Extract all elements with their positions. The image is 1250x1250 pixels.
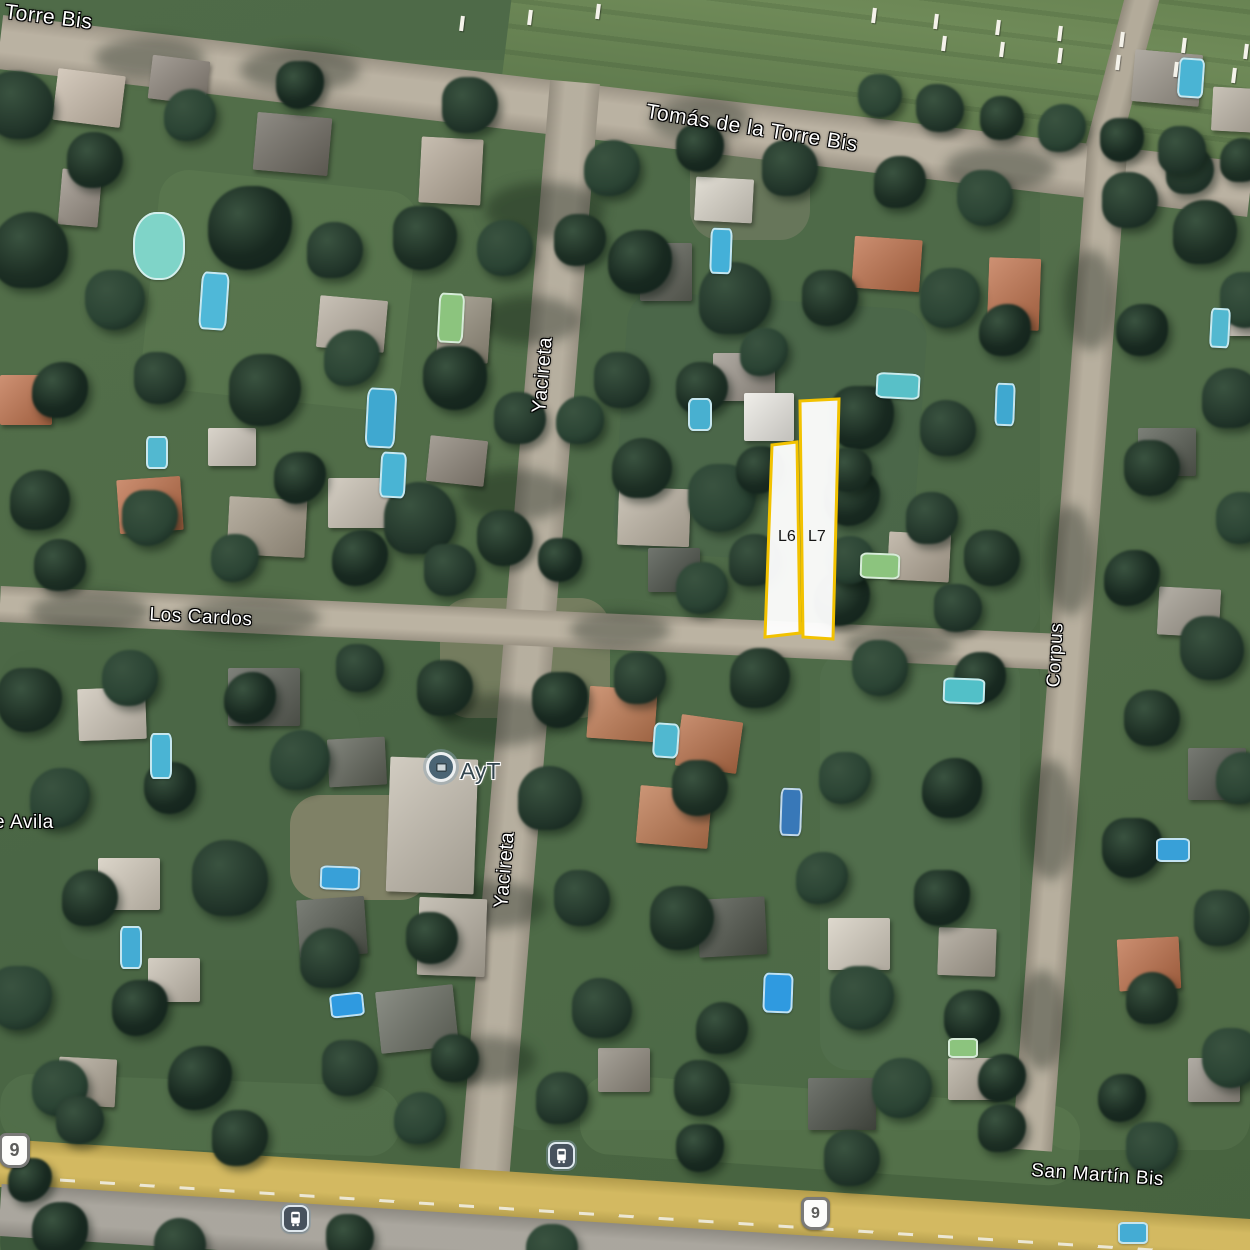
poi-circle-icon[interactable]: [426, 752, 456, 782]
poi-label: AyT: [460, 758, 500, 785]
bus-icon: [552, 1146, 571, 1165]
street-label-corpus: Corpus: [1043, 622, 1068, 688]
street-label-avila-partial: e Avila: [0, 812, 54, 834]
route-9-shield: 9: [801, 1197, 830, 1230]
bus-stop-icon[interactable]: [282, 1205, 309, 1232]
lot-L7-label: L7: [808, 528, 826, 546]
building-glyph: [436, 763, 447, 772]
satellite-map[interactable]: L6 L7 a Torre Bis Tomás de la Torre Bis …: [0, 0, 1250, 1250]
route-9-shield: 9: [0, 1133, 30, 1168]
lot-L6-label: L6: [778, 528, 796, 546]
bus-icon: [286, 1209, 305, 1228]
lot-L7-highlight[interactable]: [800, 399, 839, 639]
bus-stop-icon[interactable]: [548, 1142, 575, 1169]
